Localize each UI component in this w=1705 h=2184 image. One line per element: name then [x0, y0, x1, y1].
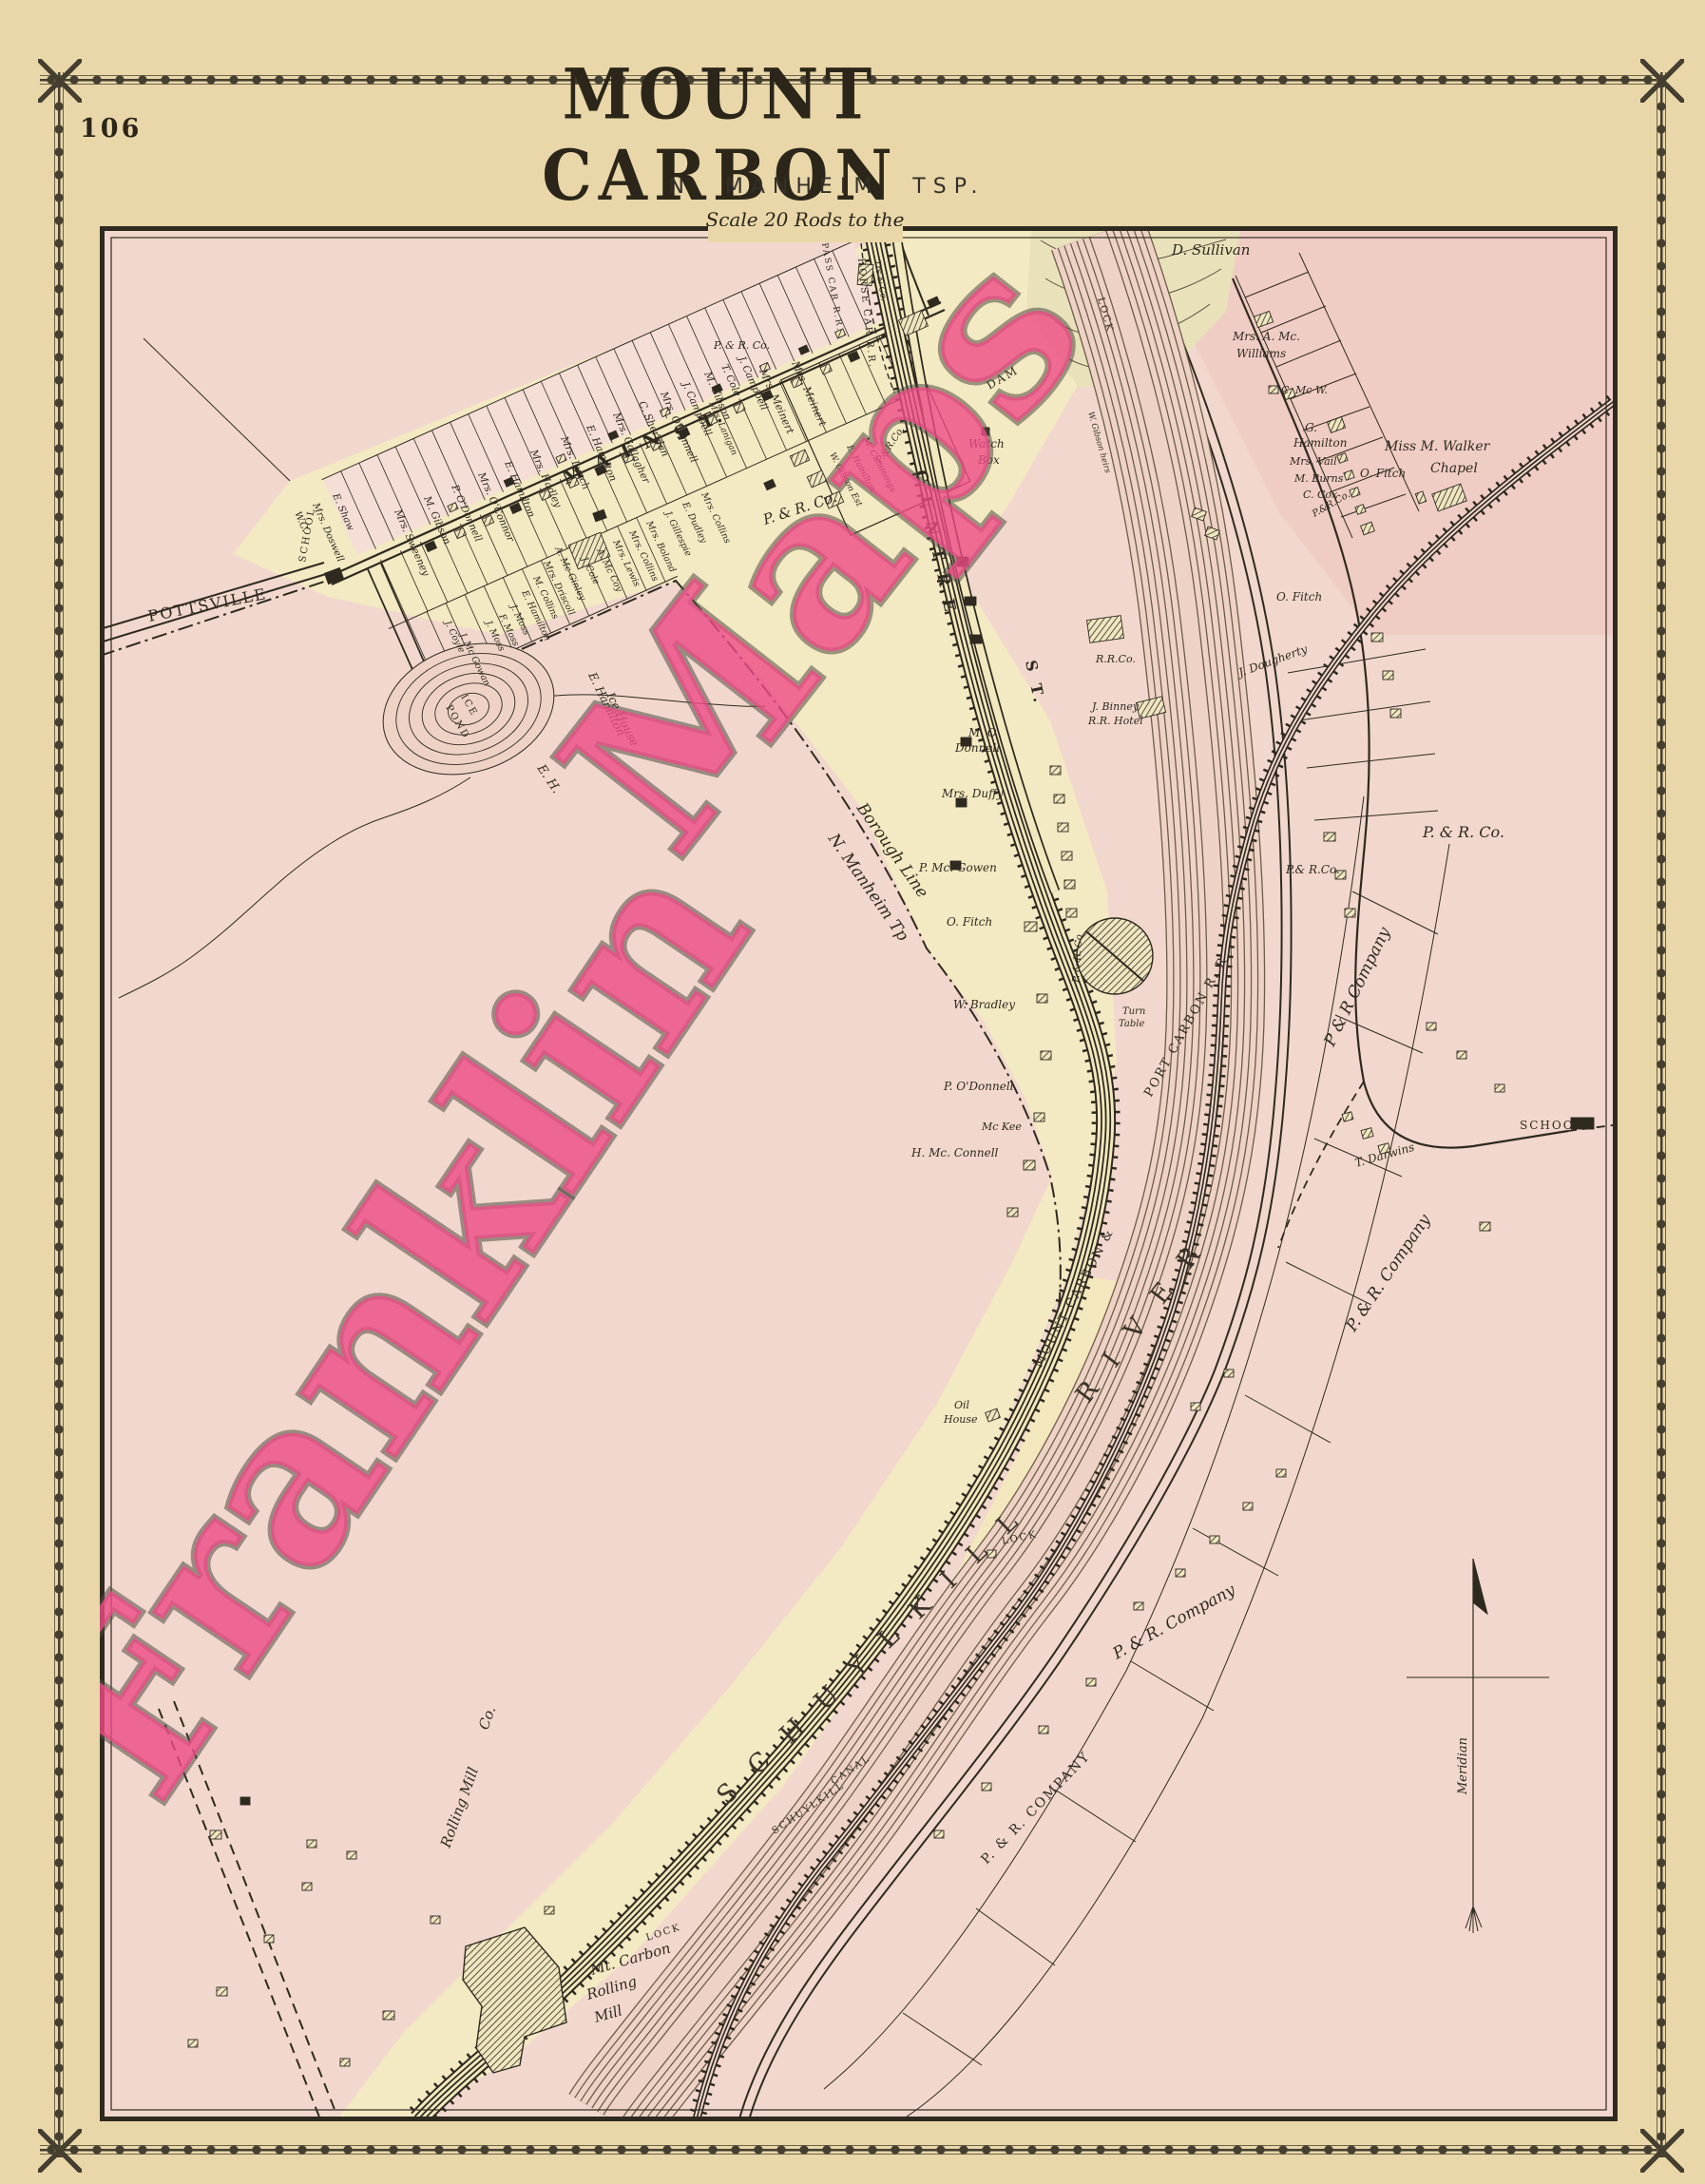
- building: [545, 1906, 554, 1914]
- building: [1383, 671, 1393, 680]
- map-label: Mrs. Vail: [1289, 455, 1337, 468]
- map-label: M. Burns: [1293, 472, 1344, 485]
- turn-table: [1077, 918, 1153, 994]
- building: [383, 2011, 394, 2020]
- building: [1276, 1469, 1286, 1477]
- border-right: [1654, 72, 1669, 2157]
- building: [188, 2040, 198, 2047]
- building: [1457, 1051, 1466, 1059]
- atlas-page: { "page": { "number": "106", "title": "M…: [0, 0, 1705, 2184]
- map-label: Oil: [954, 1399, 970, 1411]
- building: [1269, 386, 1278, 393]
- building: [217, 1987, 227, 1996]
- map-canvas: PASS CAR R.R.Trs & Co.HORSE CAR R.R.D. S…: [100, 226, 1618, 2121]
- map-label: W. Bradley: [953, 998, 1015, 1011]
- map-label: R.R. Hotel: [1087, 715, 1143, 727]
- map-label: House: [943, 1413, 978, 1426]
- map-label: O. Fitch: [947, 915, 992, 929]
- map-label: Mrs. Duffy: [941, 787, 1004, 800]
- border-left: [51, 72, 67, 2157]
- building: [340, 2059, 350, 2066]
- border-corner-tr: [1640, 59, 1684, 103]
- map-label: P. O'Donnell: [943, 1080, 1014, 1093]
- map-label: Hamilton: [1293, 436, 1347, 450]
- building: [1191, 1403, 1200, 1410]
- building: [1495, 1084, 1504, 1092]
- building: [1243, 1503, 1253, 1510]
- building: [1087, 616, 1124, 643]
- building: [1050, 766, 1061, 775]
- map-label: Meridian: [1456, 1737, 1470, 1795]
- building: [982, 1783, 991, 1791]
- map-label: D. Sullivan: [1171, 241, 1250, 259]
- building: [1086, 1678, 1096, 1686]
- building: [970, 635, 982, 643]
- map-label: M. O: [967, 726, 997, 739]
- border-corner-br: [1640, 2129, 1684, 2173]
- building: [1134, 1602, 1143, 1610]
- map-svg: PASS CAR R.R.Trs & Co.HORSE CAR R.R.D. S…: [100, 226, 1618, 2121]
- building: [1210, 1536, 1219, 1543]
- building: [934, 1830, 944, 1838]
- map-label: Mrs. A. Mc.: [1232, 330, 1300, 343]
- map-label: G.: [1305, 421, 1317, 434]
- map-label: Donnell: [954, 741, 1000, 755]
- building: [1064, 880, 1075, 889]
- map-label: J. Binney: [1090, 700, 1140, 713]
- building: [264, 1935, 274, 1943]
- map-label: R.R.Co.: [1095, 653, 1136, 665]
- building: [1062, 852, 1072, 860]
- map-label: Table: [1119, 1019, 1144, 1029]
- building: [240, 1797, 250, 1805]
- building: [1034, 1113, 1044, 1121]
- building: [1371, 633, 1383, 642]
- building: [1324, 833, 1335, 841]
- building: [1224, 1370, 1234, 1377]
- building: [302, 1883, 312, 1890]
- building: [1025, 922, 1037, 931]
- map-label: Williams: [1236, 347, 1286, 360]
- building: [1024, 1160, 1035, 1170]
- map-label: C. Mc W.: [1281, 384, 1328, 396]
- border-corner-tl: [38, 59, 82, 103]
- scale-note-gap: [708, 226, 903, 242]
- building: [431, 1916, 440, 1924]
- border-bottom: [40, 2142, 1665, 2157]
- building: [307, 1840, 316, 1848]
- map-label: P. & R. Co.: [713, 339, 770, 352]
- building: [1427, 1023, 1436, 1030]
- building: [1066, 909, 1077, 917]
- map-label: P. Mc. Gowen: [918, 861, 997, 874]
- map-label: Turn: [1122, 1006, 1145, 1017]
- building: [347, 1851, 356, 1859]
- page-subtitle: N MANHEIM TSP.: [665, 175, 988, 199]
- building: [965, 597, 976, 605]
- building: [1176, 1569, 1185, 1577]
- building: [1390, 709, 1401, 718]
- building: [1480, 1222, 1490, 1231]
- building: [1054, 795, 1064, 803]
- building: [1037, 994, 1047, 1003]
- map-label: Mc Kee: [981, 1121, 1022, 1133]
- map-label: Miss M. Walker: [1384, 439, 1491, 454]
- map-label: O. Fitch: [1276, 590, 1322, 603]
- border-corner-bl: [38, 2129, 82, 2173]
- building: [1039, 1726, 1048, 1734]
- building: [210, 1830, 221, 1839]
- map-label: Chapel: [1430, 461, 1478, 476]
- map-label: O. Fitch: [1360, 467, 1406, 480]
- page-number: 106: [80, 114, 142, 144]
- building: [1007, 1208, 1018, 1217]
- map-label: SCHOOL: [1520, 1119, 1584, 1132]
- building: [1041, 1051, 1051, 1060]
- building: [1345, 909, 1355, 917]
- map-label: P.& R.Co.: [1285, 863, 1340, 876]
- building: [1058, 823, 1068, 832]
- map-label: P. & R. Co.: [1422, 823, 1504, 841]
- map-label: H. Mc. Connell: [910, 1146, 999, 1159]
